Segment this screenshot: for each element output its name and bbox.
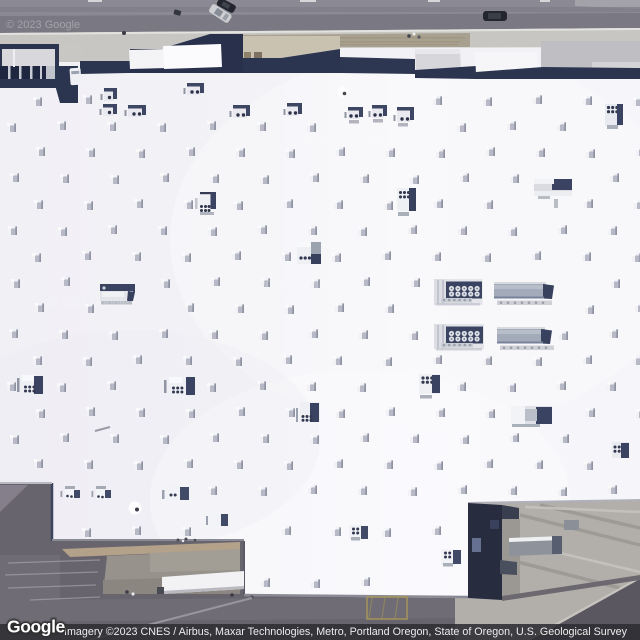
svg-text:Imagery ©2023 CNES / Airbus, M: Imagery ©2023 CNES / Airbus, Maxar Techn… (64, 626, 627, 638)
svg-text:Google: Google (7, 617, 66, 637)
svg-text:© 2023 Google: © 2023 Google (247, 278, 328, 292)
svg-text:© 2023 Google: © 2023 Google (302, 133, 383, 147)
svg-text:© 2023 Google: © 2023 Google (6, 19, 80, 31)
svg-text:© 2023 Google: © 2023 Google (48, 295, 129, 309)
